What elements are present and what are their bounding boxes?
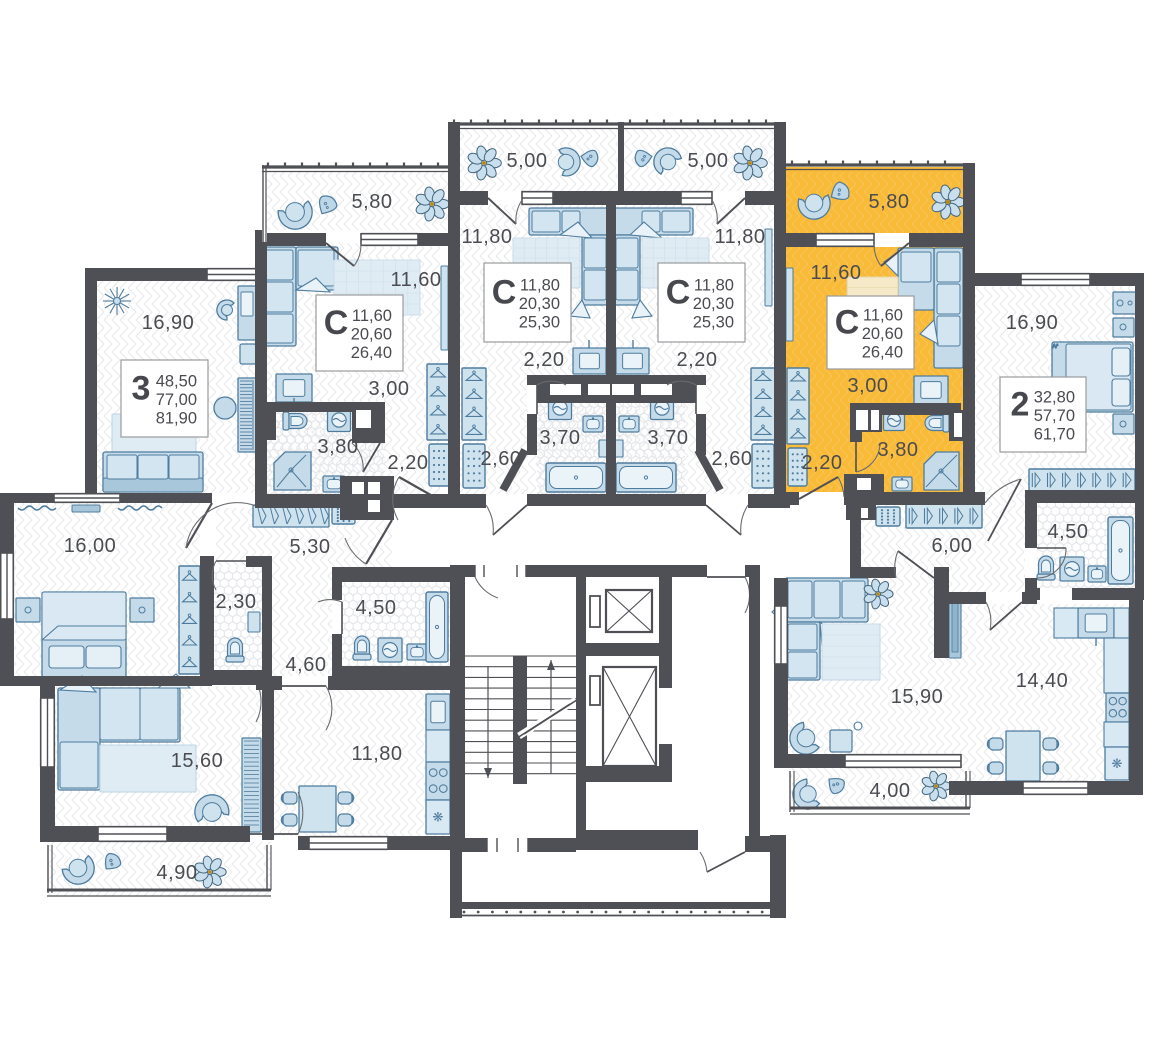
svg-text:3,00: 3,00 [848,375,889,397]
svg-text:77,00: 77,00 [156,391,197,409]
svg-text:2,20: 2,20 [802,452,843,474]
svg-text:3,70: 3,70 [648,427,689,449]
svg-text:2,20: 2,20 [677,349,718,371]
svg-text:4,00: 4,00 [870,780,911,802]
svg-text:С: С [492,274,517,312]
svg-text:61,70: 61,70 [1034,426,1075,444]
svg-text:2: 2 [1011,386,1030,424]
svg-text:4,50: 4,50 [356,597,397,619]
svg-text:11,60: 11,60 [810,262,861,284]
svg-text:81,90: 81,90 [156,410,197,428]
svg-text:32,80: 32,80 [1034,389,1075,407]
svg-text:5,00: 5,00 [507,150,548,172]
svg-text:❋: ❋ [1112,756,1123,771]
svg-text:11,60: 11,60 [863,307,903,325]
svg-text:25,30: 25,30 [693,314,734,332]
svg-text:11,80: 11,80 [520,277,560,295]
svg-text:5,80: 5,80 [869,191,910,213]
svg-text:25,30: 25,30 [519,314,560,332]
svg-text:6,00: 6,00 [932,535,973,557]
svg-text:3: 3 [132,370,151,408]
svg-text:26,40: 26,40 [862,344,903,362]
svg-text:5,00: 5,00 [688,150,729,172]
svg-text:5,30: 5,30 [290,536,331,558]
svg-text:4,90: 4,90 [157,862,198,884]
svg-text:20,60: 20,60 [351,326,392,344]
svg-text:2,60: 2,60 [712,448,753,470]
svg-text:11,80: 11,80 [351,743,402,765]
svg-text:11,60: 11,60 [390,269,441,291]
svg-text:С: С [666,274,691,312]
svg-text:16,90: 16,90 [1006,312,1059,334]
svg-text:2,20: 2,20 [388,452,429,474]
svg-text:26,40: 26,40 [351,344,392,362]
svg-text:11,60: 11,60 [352,307,392,325]
svg-text:48,50: 48,50 [156,373,197,391]
svg-text:3,70: 3,70 [540,427,581,449]
svg-text:2,20: 2,20 [524,349,565,371]
svg-text:11,80: 11,80 [461,226,512,248]
svg-text:3,80: 3,80 [318,436,359,458]
svg-text:57,70: 57,70 [1034,407,1075,425]
svg-text:15,60: 15,60 [171,750,224,772]
svg-text:16,90: 16,90 [142,312,195,334]
svg-text:4,50: 4,50 [1048,521,1089,543]
svg-text:20,60: 20,60 [862,325,903,343]
svg-text:2,60: 2,60 [481,448,522,470]
svg-text:14,40: 14,40 [1016,670,1069,692]
svg-text:4,60: 4,60 [286,654,327,676]
svg-text:❋: ❋ [433,810,444,825]
svg-text:5,80: 5,80 [352,191,393,213]
svg-text:15,90: 15,90 [891,686,944,708]
svg-text:2,30: 2,30 [216,591,257,613]
svg-text:11,80: 11,80 [694,277,734,295]
svg-text:11,80: 11,80 [714,226,765,248]
svg-text:С: С [835,304,860,342]
svg-text:20,30: 20,30 [519,295,560,313]
svg-text:С: С [324,304,349,342]
svg-text:16,00: 16,00 [64,535,117,557]
svg-text:20,30: 20,30 [693,295,734,313]
svg-text:3,00: 3,00 [369,378,410,400]
svg-text:3,80: 3,80 [878,439,919,461]
